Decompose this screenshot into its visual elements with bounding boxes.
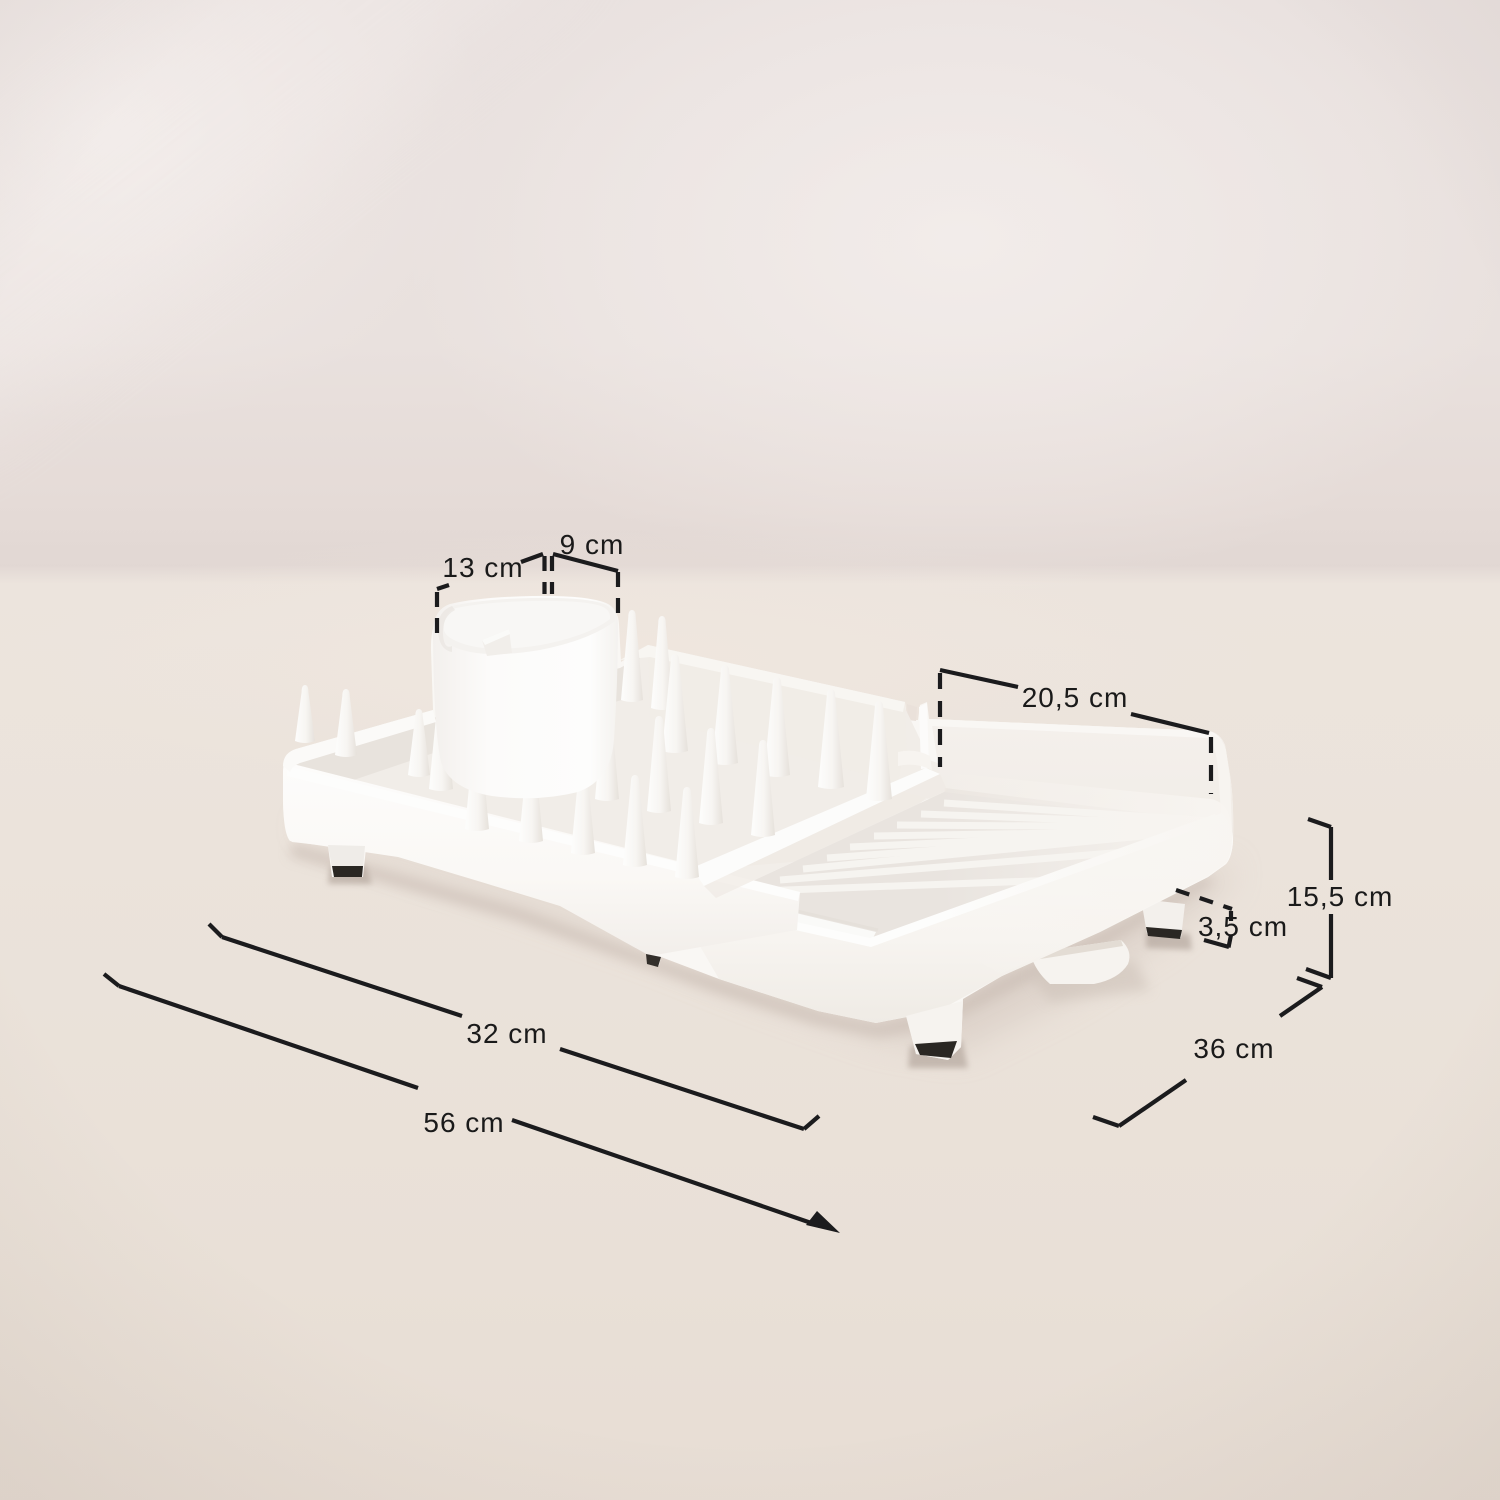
svg-text:56 cm: 56 cm	[423, 1107, 504, 1138]
svg-text:9 cm: 9 cm	[560, 529, 625, 560]
svg-text:36 cm: 36 cm	[1193, 1033, 1274, 1064]
svg-text:15,5 cm: 15,5 cm	[1287, 881, 1394, 912]
svg-text:3,5 cm: 3,5 cm	[1198, 911, 1288, 942]
svg-text:13 cm: 13 cm	[442, 552, 523, 583]
svg-text:32 cm: 32 cm	[466, 1018, 547, 1049]
svg-text:20,5 cm: 20,5 cm	[1022, 682, 1129, 713]
